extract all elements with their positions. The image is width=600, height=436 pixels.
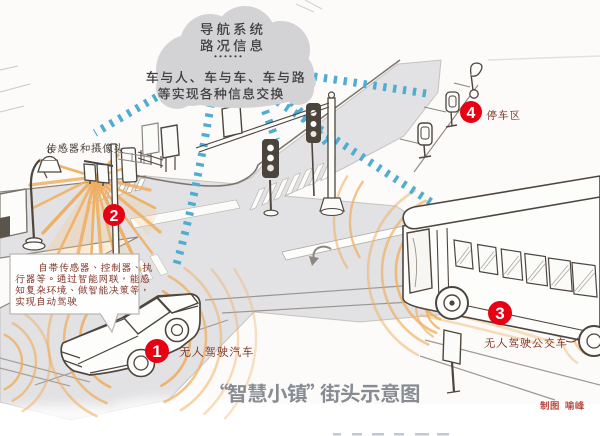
svg-text:3: 3 <box>495 304 504 323</box>
svg-text:1: 1 <box>152 342 161 361</box>
svg-text:2: 2 <box>110 208 119 225</box>
svg-text:4: 4 <box>467 105 476 122</box>
